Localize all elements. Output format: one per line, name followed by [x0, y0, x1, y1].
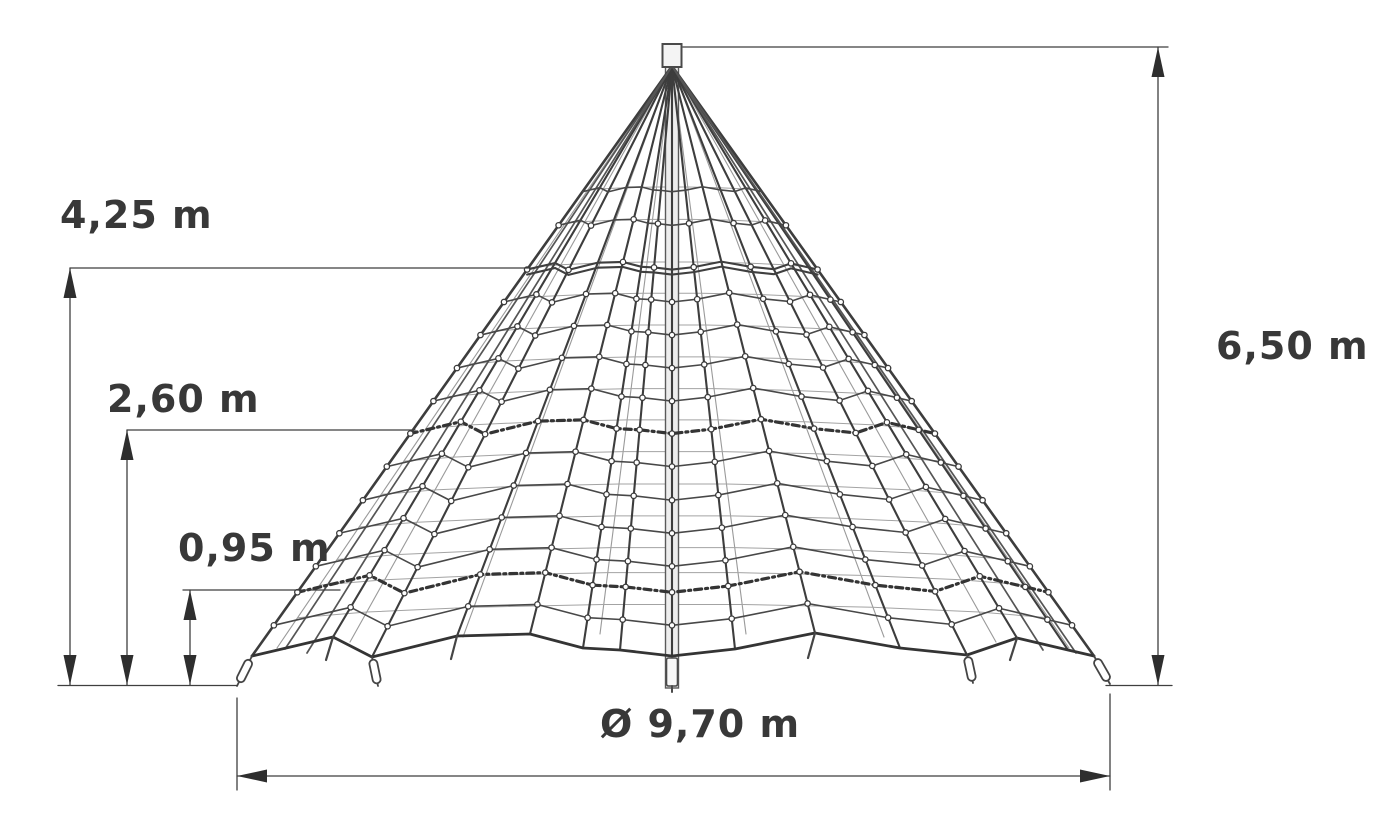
dimension-label-level2-height: 2,60 m: [107, 380, 260, 418]
dimension-label-level3-height: 0,95 m: [178, 529, 331, 567]
diagram-canvas: 4,25 m 2,60 m 0,95 m 6,50 m Ø 9,70 m: [0, 0, 1400, 834]
dimension-label-level1-height: 4,25 m: [60, 196, 213, 234]
dimension-label-base-diameter: Ø 9,70 m: [600, 705, 800, 743]
dimension-label-total-height: 6,50 m: [1216, 327, 1369, 365]
